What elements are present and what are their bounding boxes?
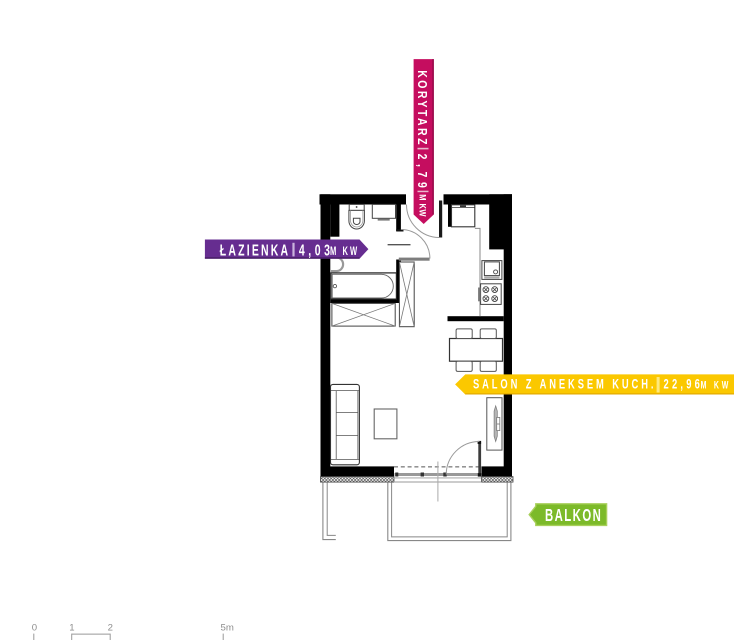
svg-text:1: 1 (69, 623, 74, 634)
svg-text:2: 2 (108, 623, 113, 634)
svg-text:M KW: M KW (330, 246, 359, 259)
svg-text:0: 0 (32, 623, 37, 634)
svg-text:4,03: 4,03 (299, 241, 334, 259)
svg-text:M KW: M KW (417, 194, 428, 217)
svg-text:2,79: 2,79 (415, 154, 429, 193)
svg-text:SALON Z ANEKSEM KUCH.: SALON Z ANEKSEM KUCH. (473, 376, 656, 393)
svg-text:ŁAZIENKA: ŁAZIENKA (220, 241, 290, 259)
svg-text:BALKON: BALKON (545, 507, 602, 526)
svg-text:5m: 5m (221, 623, 234, 634)
svg-text:22,96: 22,96 (664, 376, 704, 393)
svg-text:KORYTARZ: KORYTARZ (415, 70, 429, 147)
svg-text:M KW: M KW (701, 379, 731, 391)
